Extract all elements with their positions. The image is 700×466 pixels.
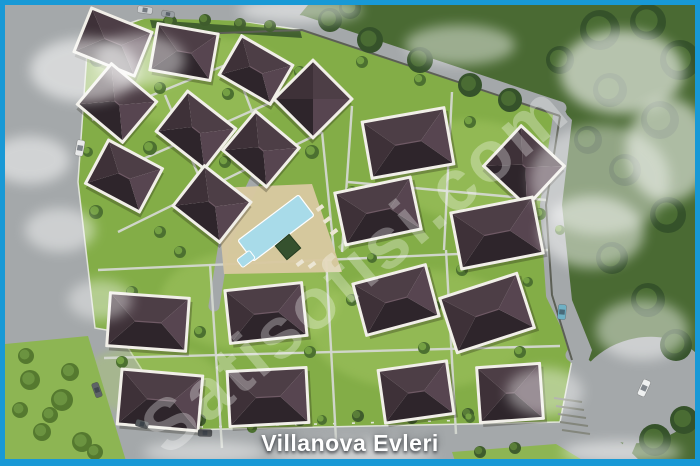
tree xyxy=(356,56,368,68)
tree xyxy=(12,402,28,418)
fog xyxy=(267,439,437,465)
tree xyxy=(498,88,522,112)
tree xyxy=(87,444,103,460)
tree xyxy=(20,370,40,390)
villa xyxy=(115,367,206,435)
fog xyxy=(530,125,670,235)
site-plan-render xyxy=(0,0,700,466)
tree xyxy=(357,27,383,53)
tree xyxy=(464,116,476,128)
tree xyxy=(174,246,186,258)
aerial-site-plan: Satisofisi.com Villanova Evleri xyxy=(0,0,700,466)
tree xyxy=(352,410,364,422)
tree xyxy=(154,226,166,238)
tree xyxy=(509,442,521,454)
fog xyxy=(143,441,267,463)
fog xyxy=(95,34,185,86)
tree xyxy=(304,346,316,358)
tree xyxy=(116,356,128,368)
tree xyxy=(317,415,327,425)
tree xyxy=(367,253,377,263)
tree xyxy=(33,423,51,441)
villa xyxy=(226,366,313,431)
fog xyxy=(68,280,132,320)
tree xyxy=(414,74,426,86)
fog xyxy=(405,25,515,65)
tree xyxy=(143,141,157,155)
tree xyxy=(523,277,533,287)
tree xyxy=(474,446,486,458)
tree xyxy=(458,73,482,97)
tree xyxy=(194,326,206,338)
villa xyxy=(223,281,311,348)
tree xyxy=(89,205,103,219)
tree xyxy=(199,14,211,26)
tree xyxy=(670,406,698,434)
tree xyxy=(18,348,34,364)
tree xyxy=(418,342,430,354)
fog xyxy=(596,300,688,360)
fog xyxy=(25,208,95,252)
tree xyxy=(305,145,319,159)
tree xyxy=(514,346,526,358)
fog xyxy=(507,368,583,416)
car xyxy=(198,429,212,436)
tree xyxy=(61,363,79,381)
tree xyxy=(83,147,93,157)
car xyxy=(557,304,566,320)
villa xyxy=(376,359,457,428)
tree xyxy=(465,413,475,423)
tree xyxy=(234,18,246,30)
fog xyxy=(562,441,682,463)
tree xyxy=(222,88,234,100)
tree xyxy=(42,407,58,423)
tree xyxy=(51,389,73,411)
